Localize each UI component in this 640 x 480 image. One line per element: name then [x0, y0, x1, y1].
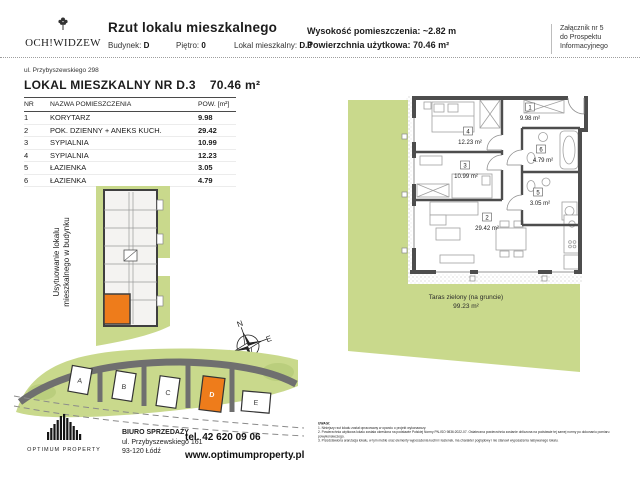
svg-text:D: D — [209, 392, 215, 400]
website-link[interactable]: www.optimumproperty.pl — [185, 447, 304, 465]
tree-icon — [55, 16, 71, 31]
phone-number: tel. 42 620 09 06 — [185, 429, 304, 447]
legal-notes: UWAGI: 1. Niniejszy rzut lokalu został o… — [318, 422, 634, 478]
room-height: Wysokość pomieszczenia: ~2.82 m — [307, 24, 456, 38]
site-building-c: C — [156, 376, 180, 408]
table-row: 3SYPIALNIA10.99 — [24, 137, 236, 150]
room-table: NR NAZWA POMIESZCZENIA POW. [m²] 1KORYTA… — [24, 97, 236, 187]
room-area: 29.42 m² — [475, 226, 499, 232]
agency-logo: OPTIMUM PROPERTY — [25, 413, 103, 453]
agency-skyline-icon — [37, 413, 91, 441]
floor-plan-sheet: OCH!WIDZEW Rzut lokalu mieszkalnego Budy… — [0, 0, 640, 480]
site-building-d-highlighted: D — [199, 376, 225, 412]
svg-text:N: N — [236, 319, 245, 330]
table-row: 2POK. DZIENNY + ANEKS KUCH.29.42 — [24, 125, 236, 138]
building-meta: Budynek: D — [108, 41, 149, 50]
page-title: Rzut lokalu mieszkalnego — [108, 20, 277, 35]
highlighted-unit — [104, 294, 130, 324]
svg-text:E: E — [265, 334, 273, 344]
floor-meta: Piętro: 0 — [176, 41, 206, 50]
floor-value: 0 — [201, 41, 205, 50]
building-value: D — [144, 41, 150, 50]
unit-meta: Lokal mieszkalny: D.3 — [234, 41, 312, 50]
site-building-b: B — [112, 371, 136, 402]
table-row: 5ŁAZIENKA3.05 — [24, 162, 236, 175]
room-area: 3.05 m² — [530, 201, 550, 207]
building-location-map — [46, 178, 180, 352]
unit-title: LOKAL MIESZKALNY NR D.370.46 m² — [24, 78, 260, 92]
main-floor-plan: 1 9.98 m² 2 29.42 m² 3 10.99 m² 4 12.23 … — [345, 88, 605, 380]
contact-info: tel. 42 620 09 06 www.optimumproperty.pl — [185, 429, 304, 465]
note-line: 2. Powierzchnia użytkowa lokalu została … — [318, 431, 634, 440]
svg-text:E: E — [253, 400, 259, 407]
site-building-a: A — [68, 365, 92, 394]
table-row: 4SYPIALNIA12.23 — [24, 150, 236, 163]
developer-logo: OCH!WIDZEW — [22, 16, 104, 49]
header-separator — [0, 57, 640, 58]
header-measurements: Wysokość pomieszczenia: ~2.82 m Powierzc… — [307, 24, 456, 52]
room-area: 12.23 m² — [458, 140, 482, 146]
developer-logo-text: OCH!WIDZEW — [22, 37, 104, 49]
agency-logo-text: OPTIMUM PROPERTY — [25, 447, 103, 453]
unit-area: 70.46 m² — [210, 78, 260, 92]
svg-text:Taras zielony (na gruncie): Taras zielony (na gruncie) — [429, 294, 503, 301]
table-row: 1KORYTARZ9.98 — [24, 112, 236, 125]
room-area: 4.79 m² — [533, 158, 553, 164]
svg-text:C: C — [165, 390, 171, 398]
street-address: ul. Przybyszewskiego 298 — [24, 67, 99, 74]
note-line: 3. Przedstawiona aranżacja lokalu, w tym… — [318, 439, 634, 443]
room-area: 10.99 m² — [454, 174, 478, 180]
svg-text:99.23 m²: 99.23 m² — [453, 303, 479, 310]
usable-area: Powierzchnia użytkowa: 70.46 m² — [307, 38, 456, 52]
header-divider — [551, 24, 552, 54]
attachment-note: Załącznik nr 5 do Prospektu Informacyjne… — [560, 24, 608, 51]
site-building-e: E — [241, 391, 271, 413]
room-area: 9.98 m² — [520, 116, 540, 122]
room-table-header: NR NAZWA POMIESZCZENIA POW. [m²] — [24, 98, 236, 112]
